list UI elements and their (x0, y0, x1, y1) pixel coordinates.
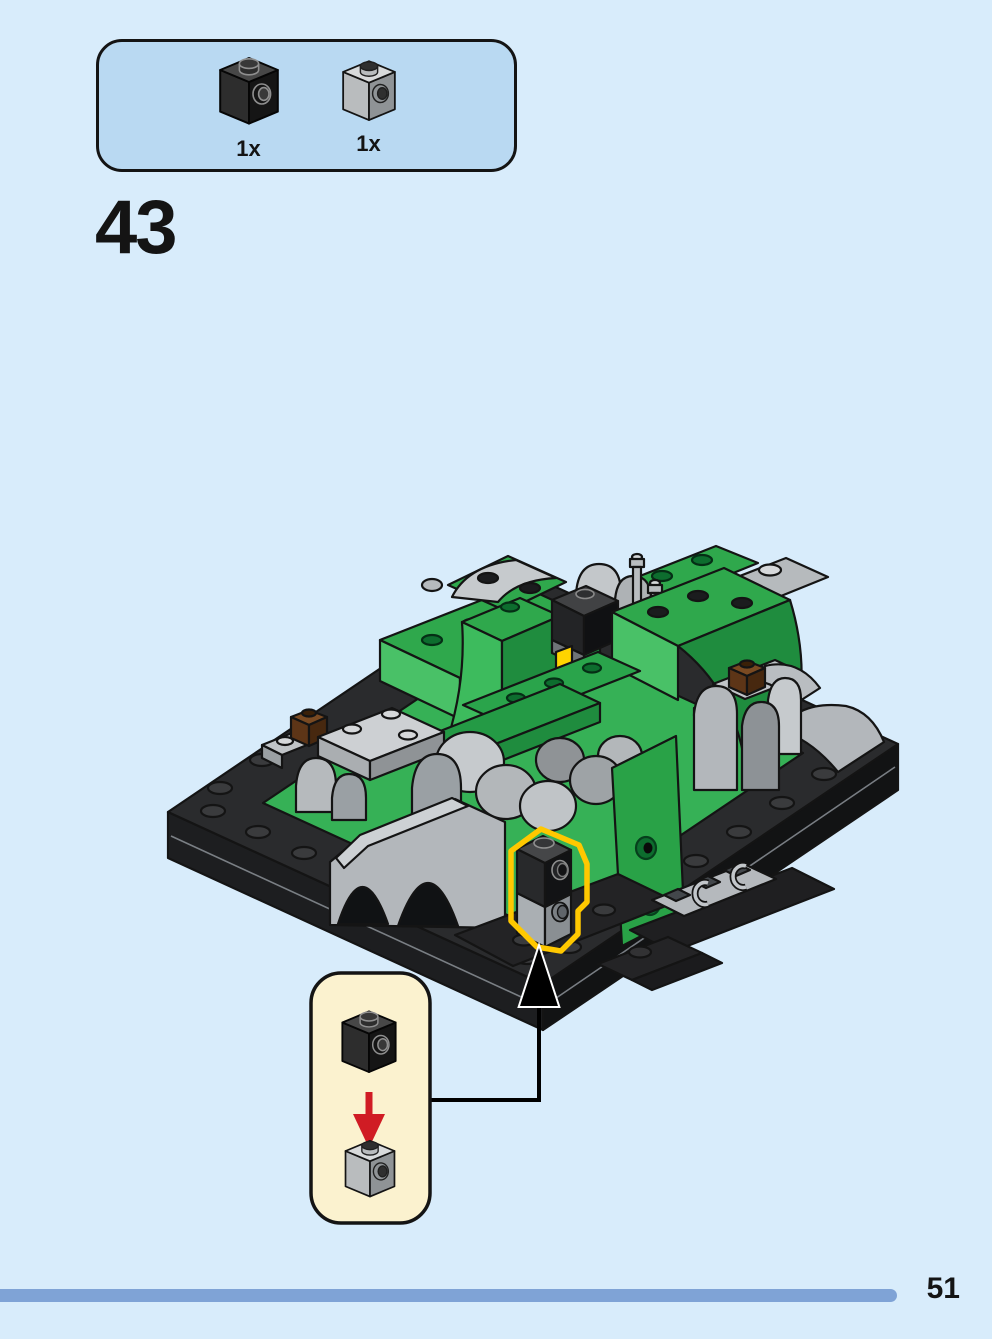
black-brick-side-stud-icon (209, 50, 289, 138)
step-number: 43 (95, 190, 176, 266)
assembly-illustration (150, 540, 920, 1240)
gray-brick-side-stud-icon (333, 54, 405, 133)
callout-panel (311, 973, 430, 1223)
callout-gray-brick-icon (346, 1141, 395, 1197)
instruction-page: { "theme": { "page_bg": "#d8ecfb", "pane… (0, 0, 992, 1339)
parts-panel: 1x 1x (96, 39, 517, 172)
part-item-gray-brick: 1x (333, 54, 405, 157)
part-count: 1x (236, 136, 260, 162)
page-number: 51 (927, 1272, 960, 1306)
callout-black-brick-icon (342, 1011, 395, 1072)
part-item-black-brick: 1x (209, 50, 289, 162)
progress-bar (0, 1289, 897, 1302)
part-count: 1x (356, 131, 380, 157)
